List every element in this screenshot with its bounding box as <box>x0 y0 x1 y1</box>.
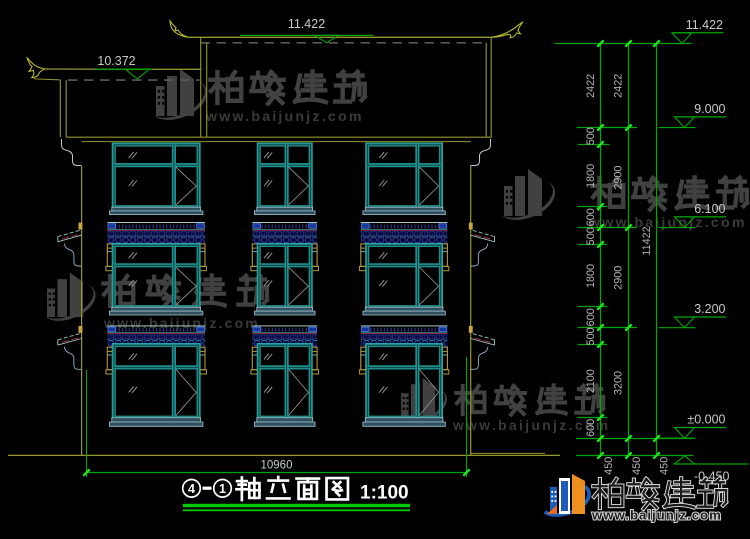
svg-text:450: 450 <box>631 457 643 475</box>
svg-text:2900: 2900 <box>613 266 625 290</box>
svg-text:10960: 10960 <box>261 459 293 471</box>
svg-text:500: 500 <box>585 227 597 245</box>
svg-text:11.422: 11.422 <box>288 17 325 31</box>
svg-text:450: 450 <box>603 457 615 475</box>
svg-text:±0.000: ±0.000 <box>687 413 725 427</box>
svg-text:500: 500 <box>585 327 597 345</box>
svg-text:6.100: 6.100 <box>694 202 725 216</box>
svg-text:500: 500 <box>585 127 597 145</box>
svg-text:600: 600 <box>585 419 597 437</box>
svg-text:10.372: 10.372 <box>97 54 135 68</box>
svg-text:2422: 2422 <box>585 74 597 98</box>
svg-text:11.422: 11.422 <box>686 18 723 32</box>
svg-text:2100: 2100 <box>585 369 597 393</box>
svg-text:11422: 11422 <box>641 226 653 255</box>
svg-text:1:100: 1:100 <box>360 483 409 504</box>
svg-text:1800: 1800 <box>585 164 597 188</box>
svg-text:4: 4 <box>188 482 195 496</box>
svg-text:1: 1 <box>219 482 226 496</box>
svg-text:1800: 1800 <box>585 264 597 288</box>
svg-text:2422: 2422 <box>613 74 625 98</box>
svg-text:2900: 2900 <box>613 166 625 190</box>
svg-text:9.000: 9.000 <box>694 102 725 116</box>
svg-text:450: 450 <box>659 457 671 475</box>
svg-text:600: 600 <box>585 208 597 226</box>
svg-text:3200: 3200 <box>613 371 625 395</box>
svg-text:www.baijunjz.com: www.baijunjz.com <box>205 109 364 125</box>
svg-text:3.200: 3.200 <box>694 302 725 316</box>
svg-text:600: 600 <box>585 308 597 326</box>
svg-text:www.baijunjz.com: www.baijunjz.com <box>591 508 722 523</box>
